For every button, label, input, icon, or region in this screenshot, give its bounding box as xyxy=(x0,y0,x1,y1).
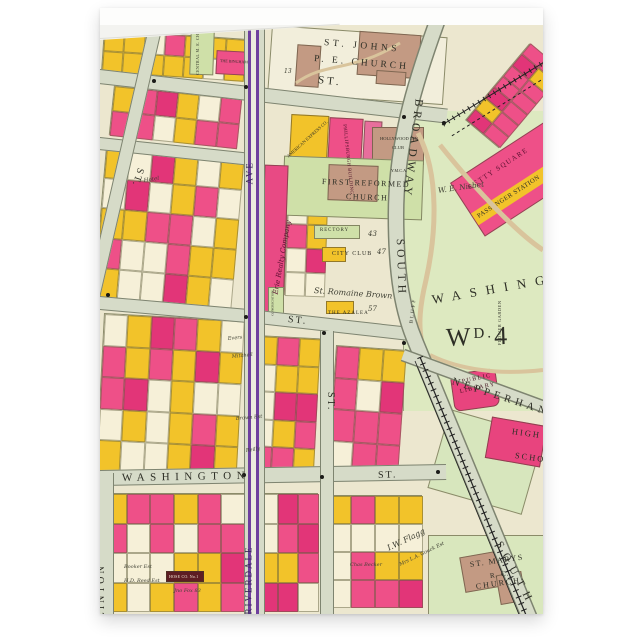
city-club-num-label: 47 xyxy=(377,249,386,256)
ward-label: WD.4 xyxy=(446,323,511,351)
hollywood-inn-label-2: CLUB xyxy=(392,146,404,151)
park-path-2 xyxy=(440,145,543,250)
azalea-num-label: 57 xyxy=(368,306,377,313)
ward-num: 4 xyxy=(494,321,511,351)
first-reformed-label-2: CHURCH xyxy=(346,193,389,202)
ymca-label: Y.M.C.A. xyxy=(391,169,407,173)
parcel-reed: H.D. Reed Est xyxy=(124,579,160,584)
rectory-num-label: 43 xyxy=(368,231,377,238)
street-label-top: ST. xyxy=(317,75,342,88)
washington-street-label: WASHINGTON xyxy=(122,471,250,484)
trolley-line-east xyxy=(256,25,259,614)
parcel-booker: Booker Est xyxy=(124,565,152,570)
riverdale-ave-label: RIVERDALE xyxy=(245,546,254,615)
greeting-card[interactable]: GETTY SQUARE PASSENGER STATION HOSE CO. … xyxy=(100,8,543,614)
city-club-label: CITY CLUB xyxy=(332,251,372,257)
hollywood-inn-label-1: HOLLYWOOD INN xyxy=(380,137,418,142)
ward-d: D. xyxy=(473,325,494,342)
washington-street-st-label: ST. xyxy=(378,470,398,481)
congregation-label: CONGREGATION xyxy=(271,291,274,316)
street-label-mid: ST. xyxy=(287,315,307,327)
railroad-track-ne xyxy=(442,61,543,125)
ward-w: W xyxy=(445,322,474,352)
road-curves-layer xyxy=(100,25,543,614)
parcel-jno-fox: Jno Fox 83 xyxy=(174,589,201,594)
clinton-label: CLINTON xyxy=(100,563,107,614)
rectory-label: RECTORY xyxy=(320,229,349,234)
railroad-track-ne-2 xyxy=(450,77,543,137)
azalea-label: THE AZALEA xyxy=(328,311,369,316)
south-broadway-label: SOUTH xyxy=(393,239,407,298)
card-fold-strip xyxy=(100,8,543,25)
parcel-becker: Chas Becker xyxy=(350,563,382,568)
ave-label: AVE xyxy=(246,161,255,184)
street-label-mid-vertical: ST. xyxy=(325,392,335,411)
atlas-map: GETTY SQUARE PASSENGER STATION HOSE CO. … xyxy=(100,25,543,614)
park-path-1 xyxy=(418,133,434,343)
product-photo-page: { "card": {"type_label": "folded greetin… xyxy=(0,0,644,644)
lot13-label: 13 xyxy=(284,69,292,75)
